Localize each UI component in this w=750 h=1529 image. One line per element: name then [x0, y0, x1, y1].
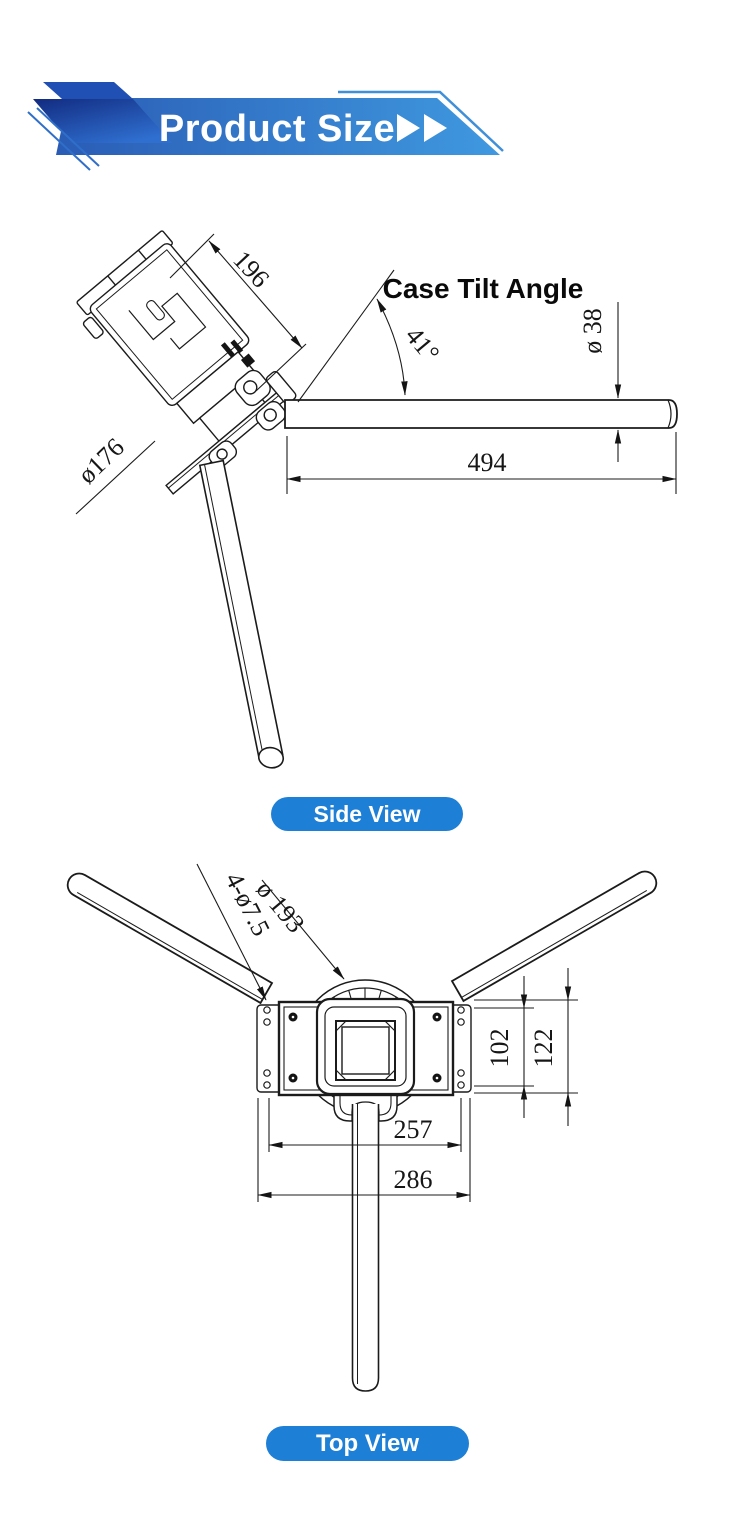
dim-pole-diameter-value: ø 38: [578, 308, 607, 354]
dim-flange-diameter: ø176: [72, 432, 155, 514]
side-view-drawing: 196 ø176 41° Case Tilt Angle ø 38 494: [39, 230, 677, 770]
technical-drawing-canvas: Product Size: [0, 0, 750, 1529]
center-bezel: [317, 999, 414, 1094]
dim-pole-length-value: 494: [468, 448, 507, 477]
dim-hole-spacing-vertical-value: 102: [485, 1029, 514, 1068]
side-view-pill: Side View: [271, 797, 463, 831]
down-tube: [200, 461, 285, 770]
product-size-page: Product Size: [0, 0, 750, 1529]
tilt-angle: 41° Case Tilt Angle: [298, 270, 583, 402]
top-view-drawing: 4-ø7.5 ø 193 102 122: [63, 864, 660, 1391]
dim-flange-diameter-value: ø176: [72, 432, 130, 489]
ribbon-fold: [43, 82, 133, 99]
page-title: Product Size: [159, 108, 395, 150]
top-view-tube: [353, 1104, 379, 1391]
tilt-angle-value: 41°: [400, 321, 446, 368]
right-handlebar: [452, 867, 661, 1001]
dim-bracket-width-value: 286: [394, 1165, 433, 1194]
dim-bracket-height-value: 122: [529, 1029, 558, 1068]
dim-hole-spacing-vertical: 102: [474, 976, 534, 1118]
dim-case-length-value: 196: [227, 245, 275, 293]
top-view-pill: Top View: [266, 1426, 469, 1461]
dim-hole-spacing-horizontal-value: 257: [394, 1115, 433, 1144]
dim-pole-diameter: ø 38: [578, 302, 618, 462]
horizontal-pole: [285, 400, 677, 428]
tilt-angle-label: Case Tilt Angle: [383, 273, 584, 304]
header-banner: Product Size: [28, 82, 503, 170]
